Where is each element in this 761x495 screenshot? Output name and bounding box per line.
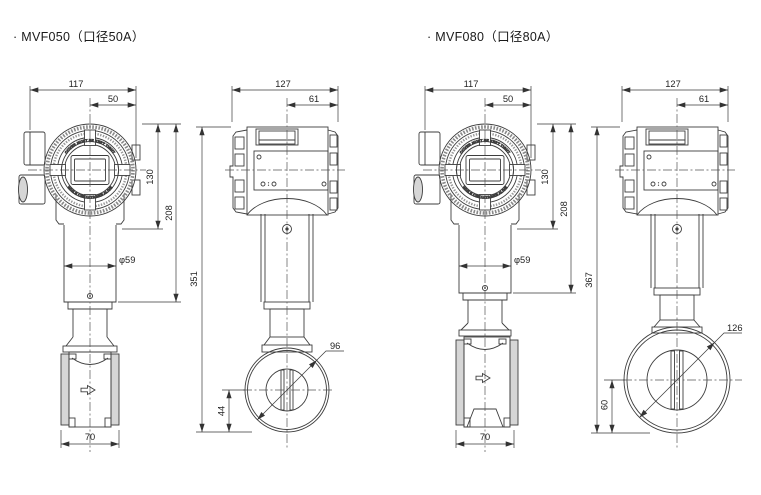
section-title-mvf080: · MVF080（口径80A）	[427, 26, 559, 45]
dim-body-diameter: 96	[330, 341, 340, 351]
dim-overall-width: 117	[69, 79, 84, 89]
dim-overall-width: 127	[665, 79, 681, 89]
dim-half-width: 61	[699, 94, 709, 104]
butterfly-disc	[680, 351, 684, 409]
flow-direction-arrow-icon	[81, 386, 95, 395]
technical-drawing-page: · MVF050（口径50A） · MVF080（口径80A）	[0, 0, 761, 495]
dim-half-width: 50	[503, 94, 513, 104]
wafer-body	[464, 337, 510, 427]
wafer-side-plate-right	[111, 354, 119, 425]
dim-overall-width: 117	[464, 79, 479, 89]
flow-direction-arrow-icon	[476, 374, 490, 383]
dim-half-width: 50	[108, 94, 118, 104]
dim-total-height: 351	[189, 271, 199, 287]
dim-body-width: 70	[480, 432, 490, 442]
dim-head-height: 208	[559, 201, 569, 217]
mvf050-front-view: 117 50 130 208 φ59 70	[19, 79, 182, 452]
mvf050-side-view: 127 61 351 96 44	[189, 79, 345, 450]
section-title-mvf050: · MVF050（口径50A）	[13, 26, 145, 45]
dim-disc-offset: 44	[217, 406, 227, 416]
dim-disc-offset: 60	[600, 400, 610, 410]
dim-half-width: 61	[309, 94, 319, 104]
dim-head-height: 208	[164, 205, 174, 221]
wafer-side-plate-right	[510, 340, 518, 425]
dim-neck-diameter: φ59	[119, 255, 135, 265]
dim-housing-height: 130	[540, 169, 550, 185]
wafer-side-plate-left	[456, 340, 464, 425]
dim-body-diameter: 126	[727, 323, 743, 333]
dim-total-height: 367	[584, 272, 594, 288]
mvf080-side-view: 127 61 367 126 60	[584, 79, 743, 450]
wafer-side-plate-left	[61, 354, 69, 425]
flowmeter-dimensional-drawing: COVER MUST BE KEPT TIGHT WHILE CIRCUITS …	[0, 0, 761, 495]
dim-overall-width: 127	[275, 79, 291, 89]
mvf080-front-view: 117 50 130 208 φ59 70	[414, 79, 577, 452]
dim-neck-diameter: φ59	[514, 255, 530, 265]
dim-housing-height: 130	[145, 169, 155, 185]
dim-body-width: 70	[85, 432, 95, 442]
